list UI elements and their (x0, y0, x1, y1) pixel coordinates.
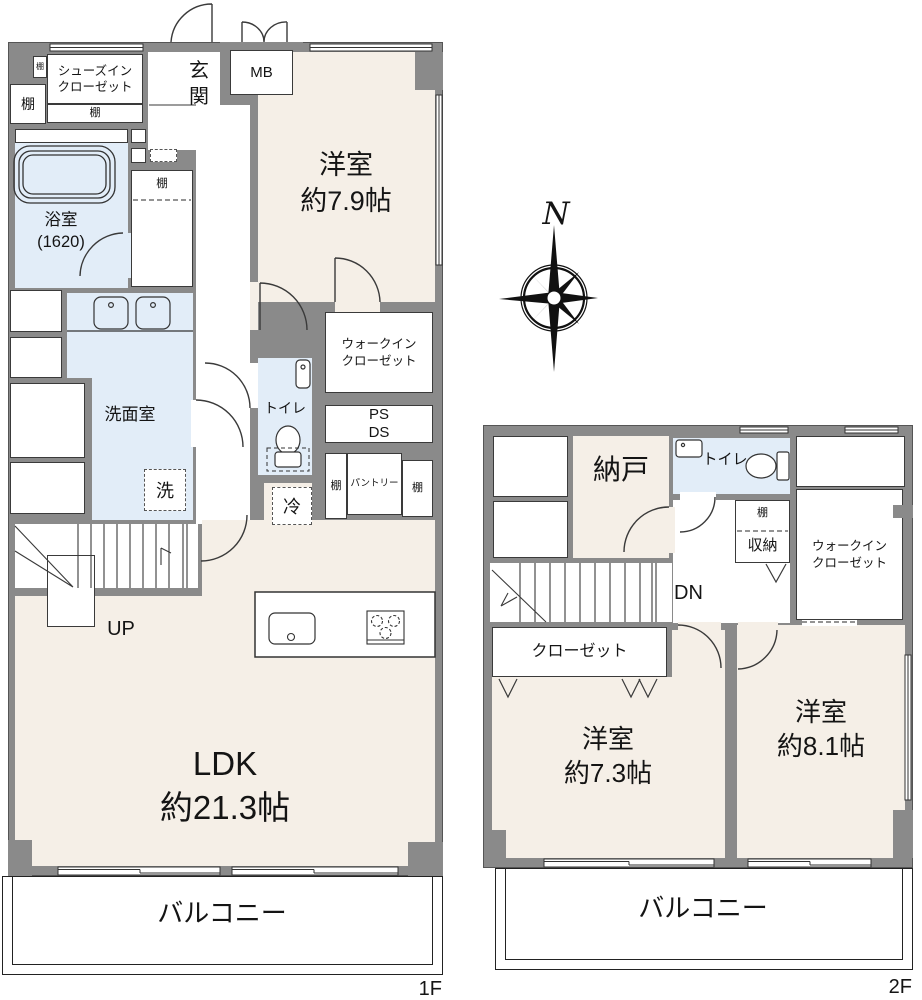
stairs-2f-icon (492, 563, 656, 622)
washroom-label: 洗面室 (80, 404, 180, 426)
dashed-lines (133, 200, 857, 622)
kitchen-counter-icon (255, 592, 435, 657)
door-arcs (80, 4, 777, 669)
western-room-7-3-label: 洋室 約7.3帖 (518, 722, 698, 791)
balcony-2f-label: バルコニー (593, 891, 813, 925)
ldk-label: LDK 約21.3帖 (115, 742, 335, 829)
entrance-label: 玄 関 (186, 58, 212, 111)
compass-icon (499, 225, 598, 372)
western-room-8-1-label: 洋室 約8.1帖 (731, 695, 911, 764)
floor-1f-label: 1F (404, 976, 442, 1000)
storage-room-label: 納戸 (571, 452, 671, 489)
washstand-icon (67, 297, 193, 331)
balcony-1f-label: バルコニー (112, 896, 332, 930)
western-room-7-9-label: 洋室 約7.9帖 (266, 148, 426, 219)
floorplan-linework (0, 0, 922, 1000)
toilet-1f-label: トイレ (256, 399, 314, 417)
floorplan-canvas: 棚 シューズイン クローゼット 棚 棚 MB 棚 ウォークイン クローゼット P… (0, 0, 922, 1000)
floor-2f-label: 2F (874, 974, 912, 1000)
stairs-down-label: DN (674, 580, 724, 606)
stairs-1f-icon (15, 524, 187, 588)
compass-north-label: N (536, 194, 576, 235)
stairs-up-label: UP (96, 616, 146, 642)
bathtub-icon (14, 146, 115, 203)
bathroom-label: 浴室 (1620) (16, 210, 106, 254)
toilet-2f-label: トイレ (690, 450, 760, 470)
folding-door-marks (499, 564, 786, 697)
